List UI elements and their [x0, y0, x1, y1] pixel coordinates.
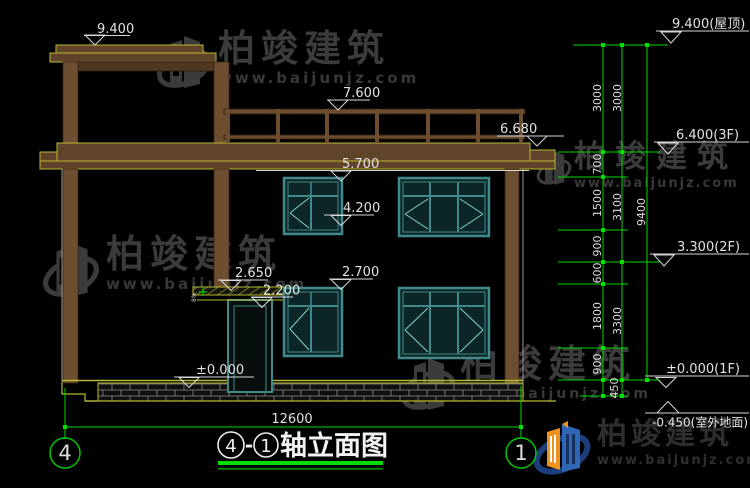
dim-label: 3100 [611, 193, 624, 221]
dim-label: 3000 [611, 84, 624, 112]
svg-text:6.680: 6.680 [500, 122, 537, 137]
axis-bubble-right: 1 [506, 438, 536, 468]
dimension-chain: 3000 700 1500 900 600 1800 900 450 3000 … [558, 43, 668, 399]
level-marker-2700: 2.700 [329, 265, 379, 290]
title-caption: 轴立面图 [280, 430, 388, 462]
level-marker-outdoor-ground: -0.450(室外地面) [645, 402, 749, 430]
dim-label: 1800 [591, 302, 604, 330]
drawing-title: 4 - 1 轴立面图 [218, 430, 388, 470]
svg-text:-0.450(室外地面): -0.450(室外地面) [652, 415, 748, 430]
level-marker-6680: 6.680 [497, 122, 564, 146]
level-marker-1f: ±0.000(1F) [645, 362, 749, 388]
corner-column-right [505, 169, 519, 383]
window-2f-left [284, 178, 342, 234]
svg-text:±0.000: ±0.000 [196, 363, 244, 378]
canopy-slope-note: 8% [191, 292, 198, 302]
title-underline [218, 461, 383, 465]
svg-text:9.400(屋顶): 9.400(屋顶) [672, 17, 745, 32]
svg-text:5.700: 5.700 [342, 157, 379, 172]
dim-label: 600 [591, 263, 604, 284]
window-1f-right [399, 288, 489, 358]
dim-label: 9400 [635, 198, 648, 226]
svg-text:1: 1 [514, 441, 527, 465]
svg-text:±0.000(1F): ±0.000(1F) [666, 362, 740, 377]
cad-canvas: 柏竣建筑 www.baijunjz.com 柏竣建筑 www.baijunjz.… [0, 0, 750, 488]
svg-text:7.600: 7.600 [343, 86, 380, 101]
brick-plinth [98, 383, 523, 401]
svg-text:6.400(3F): 6.400(3F) [676, 128, 739, 143]
level-marker-9400: 9.400 [84, 22, 134, 45]
window-2f-right [399, 178, 489, 236]
width-dim-label: 12600 [271, 412, 312, 427]
dim-label: 900 [591, 236, 604, 257]
dim-label: 450 [608, 378, 621, 399]
svg-text:2.700: 2.700 [342, 265, 379, 280]
dim-label: 700 [591, 154, 604, 175]
ground [62, 381, 556, 402]
roof-slab [40, 143, 555, 169]
title-separator: - [245, 433, 253, 457]
svg-text:2.650: 2.650 [235, 266, 272, 281]
level-marker-7600: 7.600 [327, 86, 380, 110]
tower-beam [78, 62, 214, 71]
svg-text:4.200: 4.200 [343, 201, 380, 216]
title-axis-left: 4 [225, 436, 236, 457]
dim-label: 1500 [591, 189, 604, 217]
svg-text:9.400: 9.400 [97, 22, 134, 37]
title-underline-thin [218, 468, 383, 470]
elevation-drawing: 8% [0, 0, 750, 488]
level-marker-2f: 3.300(2F) [650, 240, 749, 266]
dim-label: 900 [591, 354, 604, 375]
svg-text:3.300(2F): 3.300(2F) [677, 240, 740, 255]
mid-column [214, 169, 229, 288]
level-marker-3f: 6.400(3F) [654, 128, 749, 154]
title-axis-right: 1 [260, 436, 271, 457]
svg-text:2.200: 2.200 [263, 284, 300, 299]
stair-tower [50, 45, 229, 143]
level-marker-roof-right: 9.400(屋顶) [656, 17, 749, 43]
tower-column-left [63, 62, 78, 143]
dim-label: 3300 [611, 307, 624, 335]
axis-bubble-left: 4 [50, 438, 80, 468]
corner-column-left [63, 169, 78, 383]
dim-label: 3000 [591, 84, 604, 112]
roof-railing [224, 109, 525, 143]
svg-text:4: 4 [58, 441, 71, 465]
entry-door [228, 300, 272, 392]
